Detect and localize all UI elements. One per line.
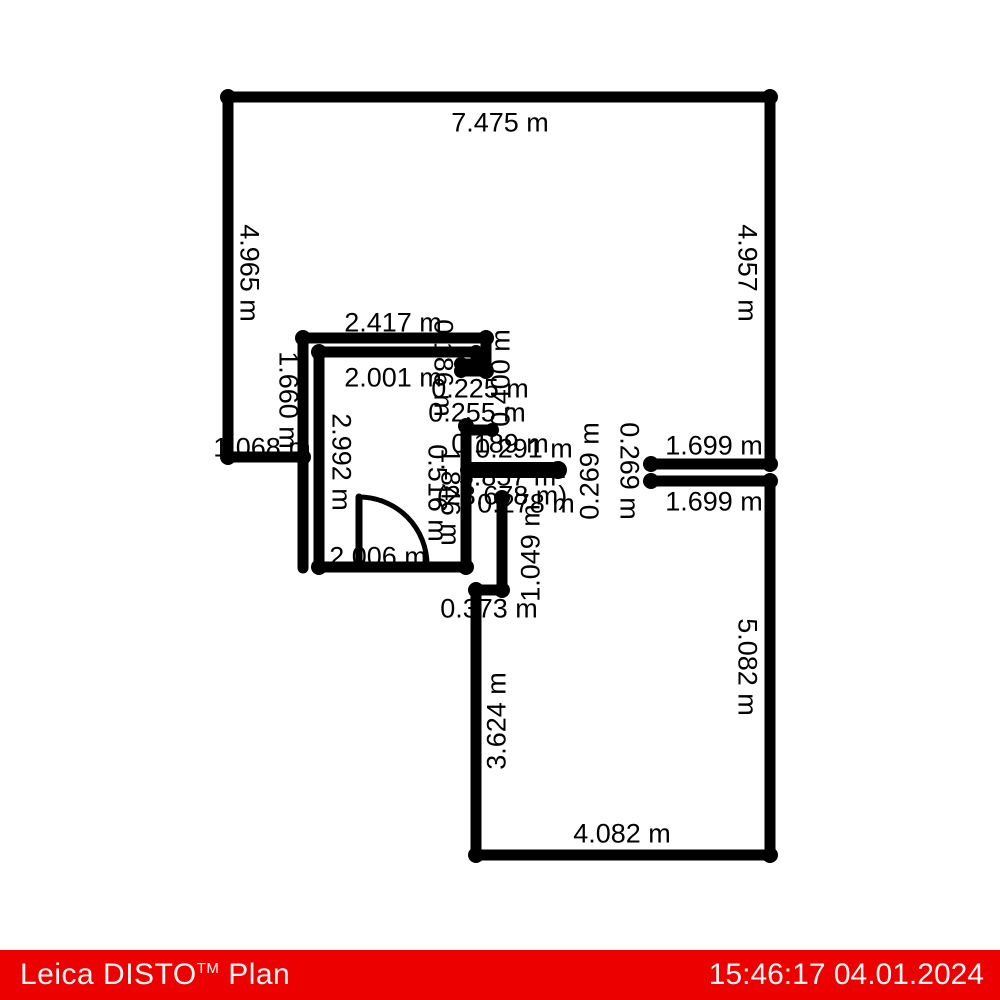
- disto-plan-export-screen: 7.475 m4.965 m4.957 m2.417 m2.001 m1.660…: [0, 0, 1000, 1000]
- trademark-symbol: TM: [197, 960, 220, 977]
- dimension-label: 2.992 m: [328, 413, 355, 511]
- dimension-label: 0.373 m: [440, 596, 538, 623]
- dimension-label: 7.475 m: [451, 110, 549, 137]
- dimension-label: 1.068 m: [213, 435, 311, 462]
- dimension-label: 0.269 m: [616, 422, 643, 520]
- app-title: Leica DISTOTM Plan: [20, 958, 290, 992]
- app-name-suffix: Plan: [219, 958, 290, 991]
- dimension-label: 3.624 m: [484, 672, 511, 770]
- dimension-label: 1.699 m: [665, 489, 763, 516]
- dimension-label: 0.400 m: [488, 329, 515, 427]
- timestamp: 15:46:17 04.01.2024: [709, 958, 984, 992]
- dimension-label: 1.846 m: [437, 448, 464, 546]
- dimension-label: 1.699 m: [665, 433, 763, 460]
- dimension-label: 4.965 m: [236, 224, 263, 322]
- dimension-label: 4.082 m: [573, 821, 671, 848]
- floorplan-canvas: 7.475 m4.965 m4.957 m2.417 m2.001 m1.660…: [0, 0, 1000, 950]
- dimension-label: 0.186 m: [430, 319, 457, 417]
- dimension-label: 1.049 m: [518, 504, 545, 602]
- dimension-label: 2.417 m: [344, 310, 442, 337]
- dimension-label: 0.291 m: [475, 436, 573, 463]
- dimension-label: 2.001 m: [344, 365, 442, 392]
- dimension-label: 0.269 m: [577, 422, 604, 520]
- dimension-label: 5.082 m: [734, 618, 761, 716]
- dimension-label: 4.957 m: [734, 224, 761, 322]
- dimension-label: 2.006 m: [329, 544, 427, 571]
- footer-bar: Leica DISTOTM Plan 15:46:17 04.01.2024: [0, 950, 1000, 1000]
- app-name: Leica DISTO: [20, 958, 197, 991]
- dimension-labels: 7.475 m4.965 m4.957 m2.417 m2.001 m1.660…: [0, 0, 1000, 950]
